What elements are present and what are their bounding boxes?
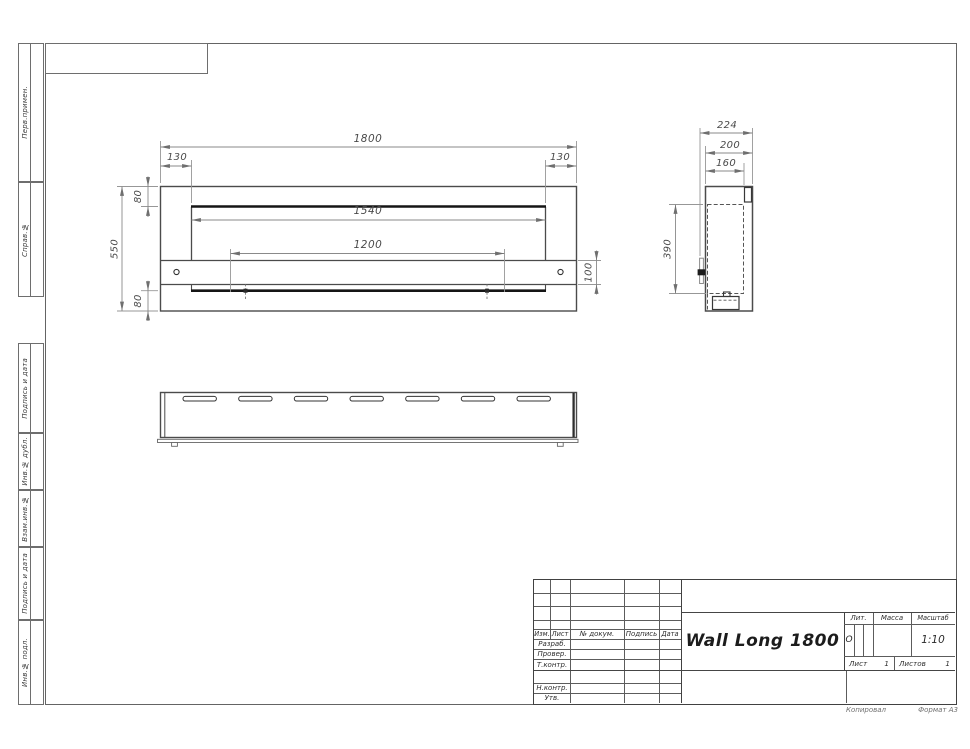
dim-side-depth-total-label: 224 — [717, 120, 737, 131]
col-header-izm: Изм. — [534, 629, 550, 639]
sheet-value: 1 — [884, 659, 889, 668]
fastener-left — [244, 284, 248, 299]
grid-line — [570, 580, 571, 703]
grid-line — [534, 620, 681, 621]
col-header-sign: Подпись — [624, 629, 659, 639]
scale-header: Масштаб — [911, 612, 955, 624]
grid-line — [534, 593, 681, 594]
mount-hole-left — [174, 269, 179, 274]
side-hidden-chamber — [708, 205, 744, 294]
row-label-checked: Провер. — [534, 649, 570, 659]
row-label-tcontrol: Т.контр. — [534, 659, 570, 670]
mount-hole-right — [558, 269, 563, 274]
footer-format: Формат А3 — [893, 706, 970, 714]
sheets-cell: Листов 1 — [894, 656, 955, 670]
dim-front-bottom-offset-label: 80 — [133, 294, 144, 307]
dim-side-depth-inner-label: 160 — [716, 158, 736, 169]
sheets-label: Листов — [899, 659, 926, 668]
dim-side-depth-body-label: 200 — [720, 140, 740, 151]
lit-header: Лит. — [844, 612, 873, 624]
grid-line — [863, 624, 864, 656]
document-title: Wall Long 1800 — [681, 612, 844, 670]
side-dimension-lines — [676, 133, 753, 294]
title-block: Изм. Лист № докум. Подпись Дата Разраб. … — [533, 579, 957, 705]
base-tab-left — [172, 443, 178, 447]
row-label-ncontrol: Н.контр. — [534, 683, 570, 693]
fastener-right — [485, 284, 489, 299]
dim-front-opening-width-label: 1540 — [354, 205, 383, 217]
grid-line — [659, 580, 660, 703]
grid-line — [534, 606, 681, 607]
dim-front-margin-left-label: 130 — [167, 152, 187, 163]
col-header-list: Лист — [550, 629, 570, 639]
sheet-label: Лист — [849, 659, 867, 668]
lit-value: О — [844, 624, 854, 656]
drawing-sheet: { "drawing_frame": { "margin_labels": { … — [0, 0, 970, 749]
side-top-bracket — [745, 188, 752, 203]
dim-front-strip-height-label: 100 — [584, 263, 595, 283]
mass-header: Масса — [873, 612, 911, 624]
side-view — [698, 187, 753, 312]
row-label-approved: Утв. — [534, 693, 570, 703]
bottom-view — [158, 393, 579, 447]
grid-line — [854, 624, 855, 656]
col-header-doc: № докум. — [570, 629, 624, 639]
grid-line — [624, 580, 625, 703]
side-box-tab — [724, 292, 731, 297]
grid-line — [846, 670, 847, 703]
sheets-value: 1 — [945, 659, 950, 668]
dim-front-width-label: 1800 — [354, 133, 383, 145]
grid-line — [534, 670, 955, 671]
row-label-developed: Разраб. — [534, 639, 570, 649]
dim-front-burner-width-label: 1200 — [354, 239, 383, 251]
bottom-base-strip — [158, 439, 579, 442]
sheet-cell: Лист 1 — [844, 656, 894, 670]
dim-front-margin-right-label: 130 — [550, 152, 570, 163]
scale-value: 1:10 — [911, 624, 955, 656]
dim-front-height-label: 550 — [110, 239, 121, 259]
side-bottom-box — [713, 297, 740, 310]
side-switch-knob — [698, 269, 706, 275]
base-tab-right — [557, 443, 563, 447]
dim-front-top-offset-label: 80 — [133, 190, 144, 203]
col-header-date: Дата — [659, 629, 681, 639]
dim-side-opening-height-label: 390 — [663, 239, 674, 259]
vent-slots — [183, 396, 550, 401]
front-extension-lines — [117, 141, 601, 311]
front-dimension-lines — [122, 147, 597, 321]
